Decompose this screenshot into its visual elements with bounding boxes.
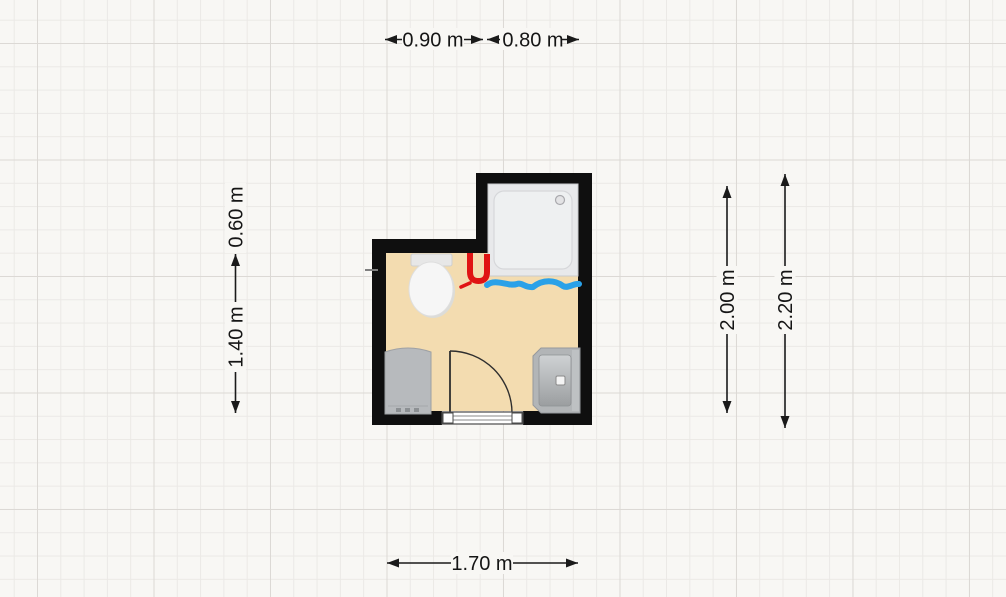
dimension-left-1: 0.60 m xyxy=(225,183,248,253)
dimension-arrow xyxy=(231,254,240,266)
dimension-arrow xyxy=(781,416,790,428)
dimension-label: 1.40 m xyxy=(226,306,248,367)
dimension-arrow xyxy=(781,174,790,186)
dimension-arrow xyxy=(385,35,397,44)
dimension-arrow xyxy=(723,186,732,198)
shower-drain xyxy=(556,196,565,205)
toilet-bowl xyxy=(409,262,453,316)
dimension-label: 2.20 m xyxy=(775,269,797,330)
wall-segment-left[interactable] xyxy=(372,239,386,425)
cabinet[interactable] xyxy=(385,348,431,414)
dimension-label: 1.70 m xyxy=(451,553,512,575)
washbasin[interactable] xyxy=(533,348,580,413)
dimension-label: 2.00 m xyxy=(717,269,739,330)
cabinet-hinges xyxy=(396,408,419,412)
washbasin-basin xyxy=(539,355,571,406)
dimension-right-1: 2.00 m xyxy=(717,186,740,413)
dimension-label: 0.90 m xyxy=(402,30,463,52)
dimension-top-1: 0.90 m xyxy=(385,28,483,52)
floorplan-canvas[interactable]: 0.90 m 0.80 m 0.60 m 1.40 m 2.00 m 2.20 xyxy=(0,0,1006,597)
floorplan-drawing: 0.90 m 0.80 m 0.60 m 1.40 m 2.00 m 2.20 xyxy=(0,0,1006,597)
dimension-top-2: 0.80 m xyxy=(487,28,579,52)
washbasin-ledge xyxy=(572,350,579,411)
dimension-arrow xyxy=(567,35,579,44)
door-threshold xyxy=(442,412,523,424)
dimension-left-2: 1.40 m xyxy=(225,254,248,413)
dimension-arrow xyxy=(566,559,578,568)
dimension-arrow xyxy=(471,35,483,44)
dimension-arrow xyxy=(387,559,399,568)
dimension-arrow xyxy=(487,35,499,44)
dimension-arrow xyxy=(723,401,732,413)
dimension-label: 0.60 m xyxy=(226,186,248,247)
washbasin-faucet xyxy=(556,376,565,385)
toilet[interactable] xyxy=(409,254,455,318)
dimension-label: 0.80 m xyxy=(502,30,563,52)
dimension-bottom-1: 1.70 m xyxy=(387,552,578,575)
shower-tray[interactable] xyxy=(488,184,578,276)
wall-segment-top[interactable] xyxy=(372,239,490,253)
dimension-right-2: 2.20 m xyxy=(775,174,798,428)
dimension-arrow xyxy=(231,401,240,413)
